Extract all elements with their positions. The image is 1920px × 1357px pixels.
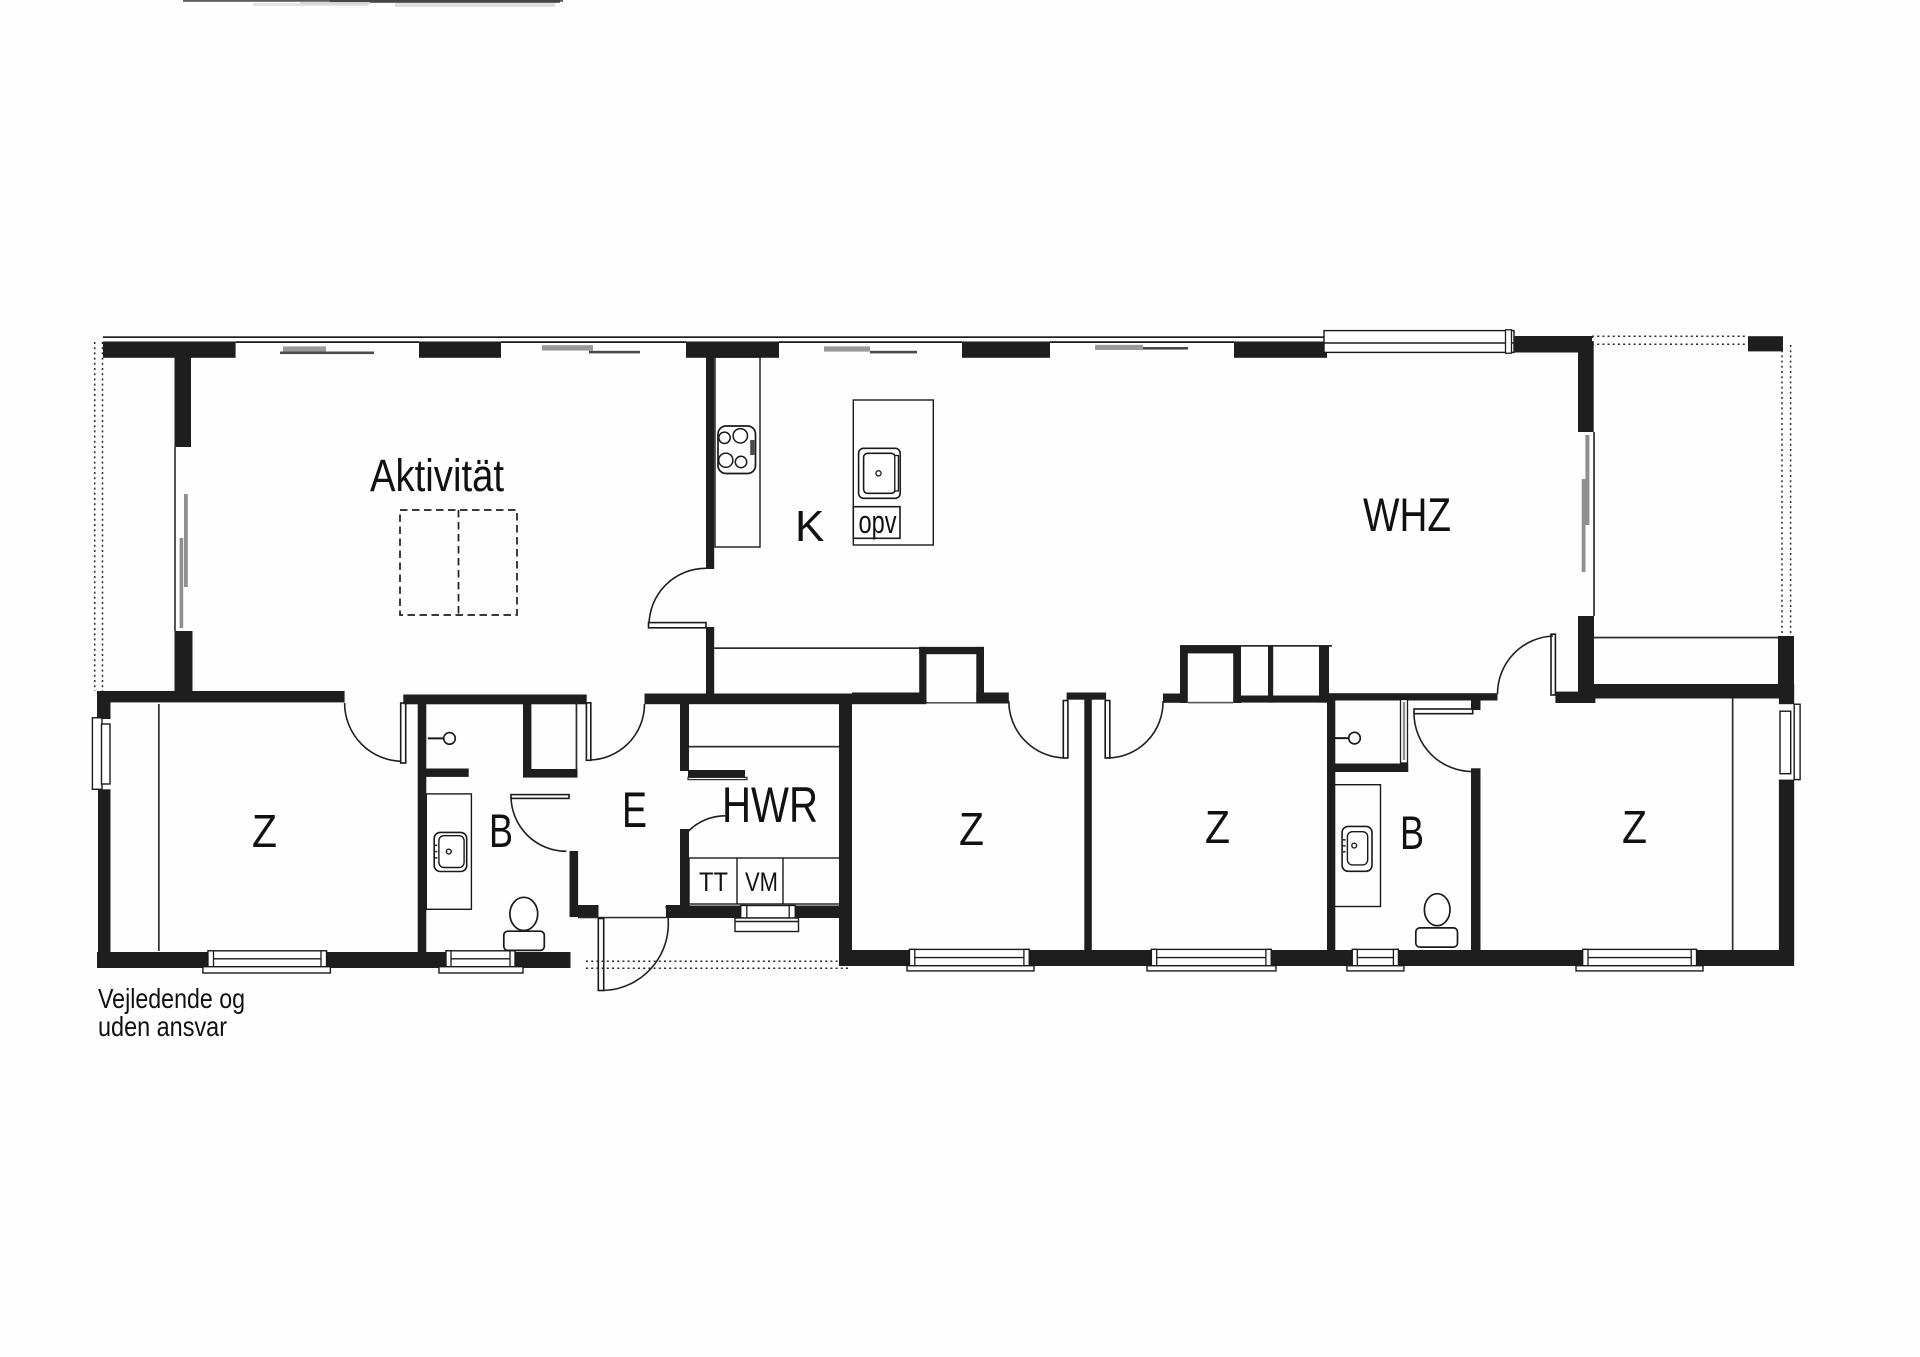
svg-text:B: B xyxy=(1400,806,1424,859)
svg-text:Z: Z xyxy=(252,805,277,857)
svg-text:Z: Z xyxy=(1622,801,1647,853)
svg-text:opv: opv xyxy=(859,504,897,540)
svg-text:Z: Z xyxy=(959,803,984,855)
svg-text:uden ansvar: uden ansvar xyxy=(98,1011,227,1042)
svg-text:WHZ: WHZ xyxy=(1363,488,1451,541)
svg-text:K: K xyxy=(795,502,824,551)
svg-text:Aktivität: Aktivität xyxy=(370,450,504,501)
svg-text:Vejledende og: Vejledende og xyxy=(98,983,245,1014)
svg-text:B: B xyxy=(489,804,513,857)
svg-text:TT: TT xyxy=(699,867,728,897)
svg-text:HWR: HWR xyxy=(722,777,818,833)
svg-text:E: E xyxy=(622,782,647,838)
svg-text:Z: Z xyxy=(1205,801,1230,853)
svg-text:VM: VM xyxy=(745,867,778,897)
